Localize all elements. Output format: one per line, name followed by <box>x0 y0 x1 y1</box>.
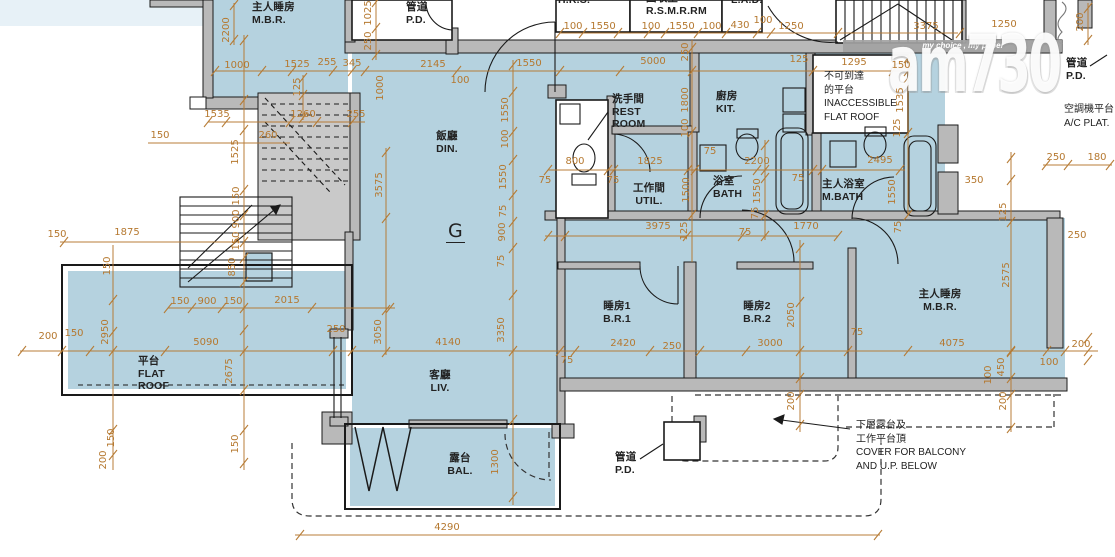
watermark-bar <box>843 40 1062 52</box>
bedroom-south-wall <box>560 378 1067 391</box>
mbr-east-wall <box>1047 218 1063 348</box>
cover-edge-lines <box>695 394 1065 427</box>
flat-roof-floor <box>68 271 346 389</box>
hall-door-arc <box>768 6 838 42</box>
pd-right-leader <box>1090 55 1107 66</box>
hrs-box <box>556 0 630 32</box>
adjacent-mbr-floor <box>208 0 348 99</box>
pd-bottom-box <box>664 422 700 460</box>
dining-living-floor <box>352 53 560 425</box>
pd-bottom-leader <box>640 444 663 459</box>
rsmrrm-box <box>630 0 722 32</box>
floor-plan-drawing <box>0 0 1115 557</box>
rest-room-box <box>556 100 608 218</box>
pd-top-box <box>352 0 452 40</box>
bedrooms-floor <box>560 218 1065 378</box>
floor-plan: 主人睡房M.B.R.管道P.D.H.R.S.回收室R.S.M.R.RML.A.D… <box>0 0 1115 557</box>
planter-box <box>246 253 272 281</box>
lad-box <box>722 0 762 32</box>
break-line <box>1058 2 1066 44</box>
inaccessible-flat-roof-box <box>813 55 908 133</box>
